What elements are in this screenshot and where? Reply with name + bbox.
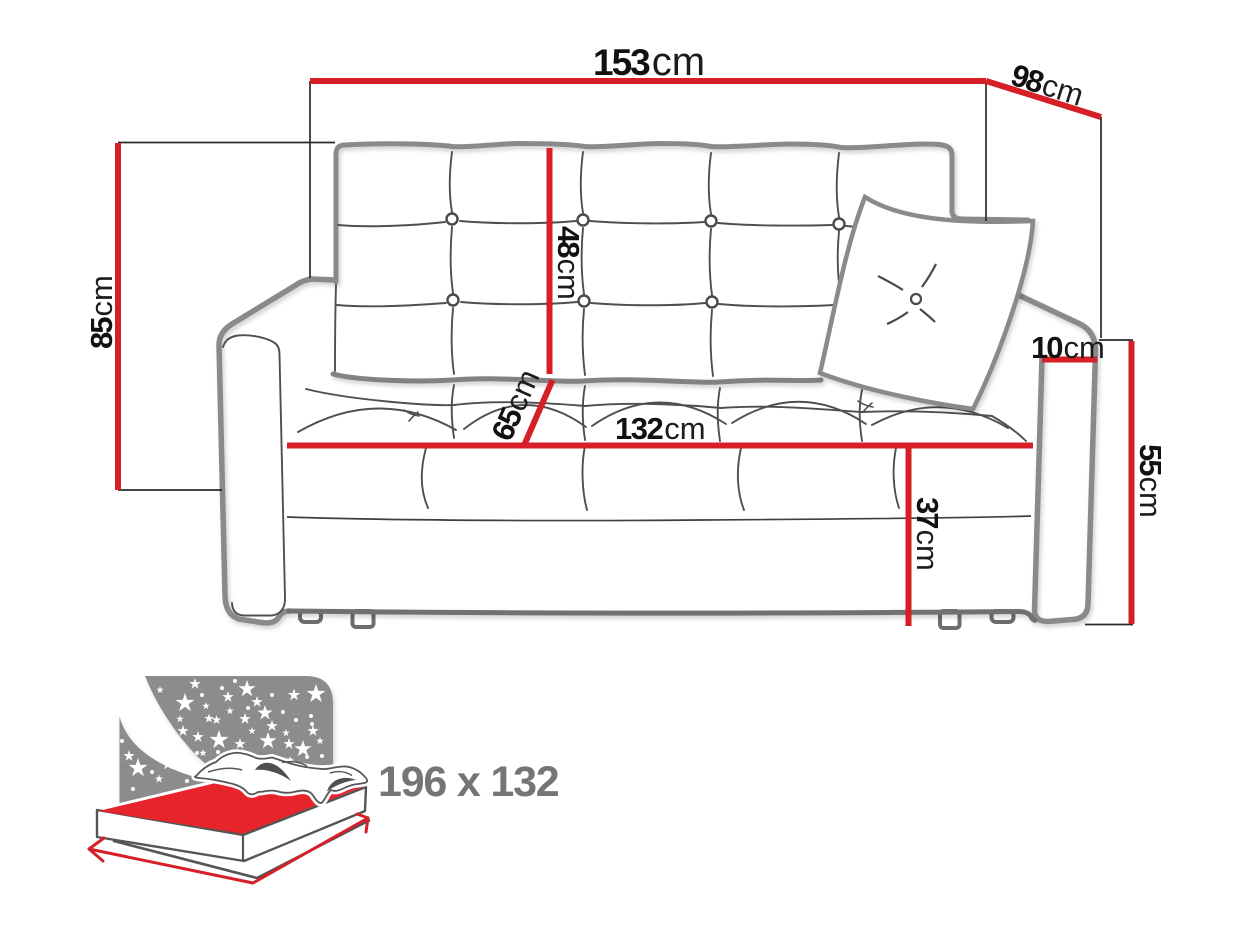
svg-text:196 x 132: 196 x 132 [378,758,559,806]
svg-text:85cm: 85cm [84,275,119,349]
svg-text:48cm: 48cm [551,226,586,300]
svg-text:37cm: 37cm [910,497,945,571]
svg-text:98cm: 98cm [1007,57,1088,113]
svg-text:132cm: 132cm [615,411,706,446]
svg-text:153cm: 153cm [593,40,705,84]
svg-text:55cm: 55cm [1133,444,1168,518]
svg-text:10cm: 10cm [1031,330,1105,365]
